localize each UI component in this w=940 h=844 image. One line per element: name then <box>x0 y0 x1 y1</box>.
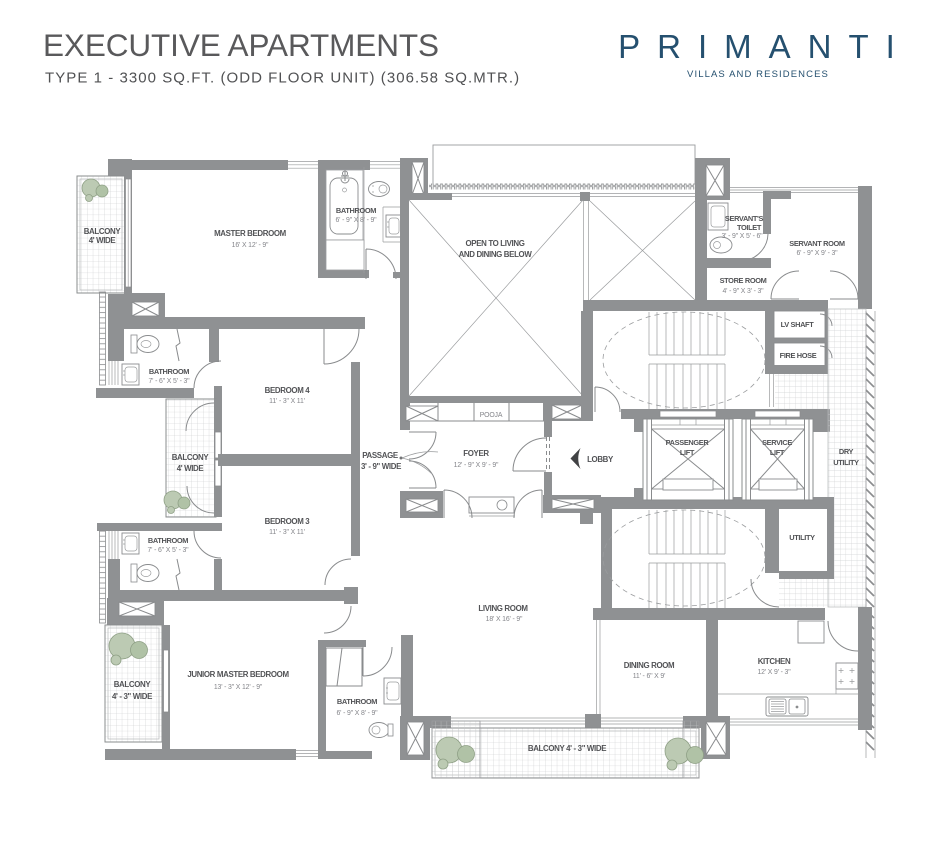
svg-text:BALCONY: BALCONY <box>172 453 210 462</box>
svg-text:3' - 9" WIDE: 3' - 9" WIDE <box>361 462 401 471</box>
svg-text:DINING ROOM: DINING ROOM <box>624 661 675 670</box>
svg-text:LV SHAFT: LV SHAFT <box>781 320 815 329</box>
svg-text:UTILITY: UTILITY <box>833 458 859 467</box>
svg-text:PASSAGE: PASSAGE <box>362 451 398 460</box>
svg-text:JUNIOR MASTER BEDROOM: JUNIOR MASTER BEDROOM <box>187 670 289 679</box>
svg-text:FOYER: FOYER <box>463 449 489 458</box>
svg-text:BALCONY: BALCONY <box>114 680 152 689</box>
svg-text:SERVICE: SERVICE <box>762 438 792 447</box>
svg-text:7' - 6" X 5' - 3": 7' - 6" X 5' - 3" <box>148 547 190 554</box>
svg-text:DRY: DRY <box>839 447 854 456</box>
svg-text:4' WIDE: 4' WIDE <box>177 464 204 473</box>
svg-text:7' - 6" X 5' - 3": 7' - 6" X 5' - 3" <box>149 378 191 385</box>
svg-text:BALCONY: BALCONY <box>84 227 122 236</box>
svg-text:BEDROOM 3: BEDROOM 3 <box>265 517 311 526</box>
svg-text:EXECUTIVE APARTMENTS: EXECUTIVE APARTMENTS <box>43 27 439 63</box>
svg-text:3' - 9" X 5' - 6": 3' - 9" X 5' - 6" <box>722 233 764 240</box>
svg-text:MASTER BEDROOM: MASTER BEDROOM <box>214 229 287 238</box>
svg-text:SERVANT ROOM: SERVANT ROOM <box>789 239 845 248</box>
svg-text:6' - 9" X 8' - 9": 6' - 9" X 8' - 9" <box>337 710 379 717</box>
svg-text:6' - 9" X 8' - 9": 6' - 9" X 8' - 9" <box>336 217 378 224</box>
svg-text:STORE ROOM: STORE ROOM <box>720 276 767 285</box>
svg-text:11' - 6" X 9': 11' - 6" X 9' <box>633 673 666 680</box>
svg-text:18' X 16' - 9": 18' X 16' - 9" <box>486 616 523 623</box>
svg-text:4' WIDE: 4' WIDE <box>89 236 116 245</box>
svg-text:PRIMANTI: PRIMANTI <box>618 28 912 65</box>
svg-text:11' - 3" X 11': 11' - 3" X 11' <box>269 398 305 405</box>
svg-text:POOJA: POOJA <box>480 412 503 419</box>
svg-text:12' X 9' - 3": 12' X 9' - 3" <box>757 669 791 676</box>
svg-text:4' - 3" WIDE: 4' - 3" WIDE <box>112 692 152 701</box>
svg-text:12' - 9" X 9' - 9": 12' - 9" X 9' - 9" <box>454 462 499 469</box>
svg-text:BATHROOM: BATHROOM <box>336 206 376 215</box>
svg-text:LIVING ROOM: LIVING ROOM <box>478 604 528 613</box>
svg-text:BEDROOM 4: BEDROOM 4 <box>265 386 311 395</box>
svg-text:11' - 3" X 11': 11' - 3" X 11' <box>269 529 305 536</box>
svg-text:BALCONY 4' - 3" WIDE: BALCONY 4' - 3" WIDE <box>528 744 606 753</box>
svg-text:16' X 12' - 9": 16' X 12' - 9" <box>232 242 269 249</box>
svg-text:LOBBY: LOBBY <box>587 455 614 464</box>
svg-text:6' - 9" X 9' - 3": 6' - 9" X 9' - 3" <box>797 250 839 257</box>
svg-text:4' - 9" X 3' - 3": 4' - 9" X 3' - 3" <box>723 288 765 295</box>
svg-text:TYPE 1 - 3300 SQ.FT. (ODD FLOO: TYPE 1 - 3300 SQ.FT. (ODD FLOOR UNIT) (3… <box>45 70 520 87</box>
svg-text:VILLAS AND RESIDENCES: VILLAS AND RESIDENCES <box>687 69 829 80</box>
svg-text:BATHROOM: BATHROOM <box>337 697 377 706</box>
svg-text:UTILITY: UTILITY <box>789 533 815 542</box>
svg-text:LIFT: LIFT <box>680 448 695 457</box>
svg-text:TOILET: TOILET <box>737 223 762 232</box>
svg-text:13' - 3" X 12' - 9": 13' - 3" X 12' - 9" <box>214 684 263 691</box>
svg-text:KITCHEN: KITCHEN <box>758 657 791 666</box>
svg-text:AND DINING BELOW: AND DINING BELOW <box>459 250 533 259</box>
svg-text:BATHROOM: BATHROOM <box>149 367 189 376</box>
svg-text:BATHROOM: BATHROOM <box>148 536 188 545</box>
svg-text:SERVANT'S: SERVANT'S <box>725 214 764 223</box>
svg-text:PASSENGER: PASSENGER <box>666 438 710 447</box>
svg-text:OPEN TO LIVING: OPEN TO LIVING <box>466 239 525 248</box>
svg-text:LIFT: LIFT <box>770 448 785 457</box>
svg-text:FIRE HOSE: FIRE HOSE <box>780 351 817 360</box>
